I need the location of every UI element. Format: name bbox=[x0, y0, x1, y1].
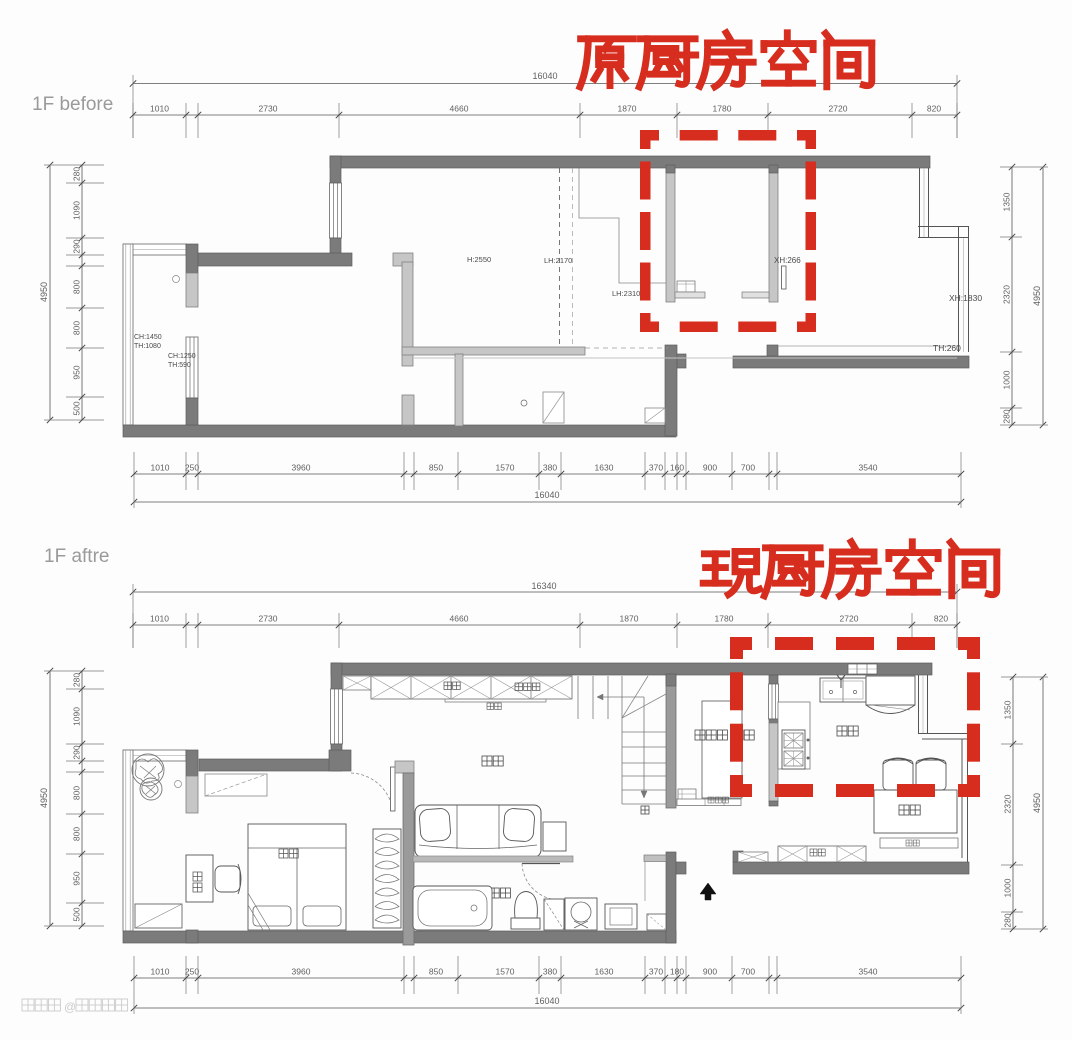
svg-text:820: 820 bbox=[934, 614, 948, 624]
svg-text:TH:260: TH:260 bbox=[933, 343, 961, 353]
svg-text:290: 290 bbox=[72, 745, 82, 759]
svg-text:1000: 1000 bbox=[1002, 370, 1012, 389]
svg-text:1010: 1010 bbox=[151, 967, 170, 977]
svg-text:800: 800 bbox=[72, 321, 82, 335]
svg-text:2720: 2720 bbox=[829, 104, 848, 114]
svg-text:1000: 1000 bbox=[1003, 878, 1013, 897]
svg-text:950: 950 bbox=[72, 365, 82, 379]
svg-text:1570: 1570 bbox=[496, 463, 515, 473]
svg-text:850: 850 bbox=[429, 967, 443, 977]
svg-text:16040: 16040 bbox=[534, 996, 559, 1006]
svg-text:3540: 3540 bbox=[859, 967, 878, 977]
svg-text:700: 700 bbox=[741, 967, 755, 977]
svg-text:1F before: 1F before bbox=[32, 94, 113, 115]
svg-text:800: 800 bbox=[72, 786, 82, 800]
svg-text:700: 700 bbox=[741, 463, 755, 473]
svg-text:290: 290 bbox=[72, 239, 82, 253]
svg-text:500: 500 bbox=[72, 907, 82, 921]
svg-text:820: 820 bbox=[927, 104, 941, 114]
svg-text:1F aftre: 1F aftre bbox=[44, 546, 109, 567]
svg-text:250: 250 bbox=[185, 967, 199, 977]
svg-text:2730: 2730 bbox=[259, 614, 278, 624]
svg-text:@: @ bbox=[64, 1000, 76, 1014]
svg-text:800: 800 bbox=[72, 280, 82, 294]
svg-text:1010: 1010 bbox=[151, 463, 170, 473]
svg-text:4660: 4660 bbox=[450, 614, 469, 624]
svg-text:900: 900 bbox=[703, 463, 717, 473]
svg-text:2720: 2720 bbox=[840, 614, 859, 624]
svg-text:LH:2170: LH:2170 bbox=[544, 256, 572, 265]
svg-text:1630: 1630 bbox=[595, 463, 614, 473]
svg-text:4660: 4660 bbox=[450, 104, 469, 114]
svg-text:16340: 16340 bbox=[531, 581, 556, 591]
svg-text:1010: 1010 bbox=[150, 614, 169, 624]
svg-text:280: 280 bbox=[72, 673, 82, 687]
svg-text:1870: 1870 bbox=[620, 614, 639, 624]
svg-text:3960: 3960 bbox=[292, 463, 311, 473]
svg-text:2320: 2320 bbox=[1002, 285, 1012, 304]
svg-text:900: 900 bbox=[703, 967, 717, 977]
svg-text:4950: 4950 bbox=[1032, 793, 1042, 813]
svg-text:1090: 1090 bbox=[72, 707, 82, 726]
svg-text:950: 950 bbox=[72, 871, 82, 885]
svg-text:16040: 16040 bbox=[534, 490, 559, 500]
svg-text:H:2550: H:2550 bbox=[467, 255, 491, 264]
svg-text:370: 370 bbox=[649, 463, 663, 473]
svg-text:CH:1450: CH:1450 bbox=[134, 334, 162, 341]
svg-text:TH:1080: TH:1080 bbox=[134, 343, 161, 350]
svg-text:2320: 2320 bbox=[1003, 794, 1013, 813]
svg-text:250: 250 bbox=[185, 463, 199, 473]
svg-text:CH:1250: CH:1250 bbox=[168, 353, 196, 360]
svg-text:1870: 1870 bbox=[618, 104, 637, 114]
svg-text:XH:1830: XH:1830 bbox=[949, 293, 982, 303]
svg-text:1570: 1570 bbox=[496, 967, 515, 977]
svg-text:1090: 1090 bbox=[72, 201, 82, 220]
svg-text:16040: 16040 bbox=[532, 71, 557, 81]
svg-text:1780: 1780 bbox=[713, 104, 732, 114]
svg-text:LH:2310: LH:2310 bbox=[612, 289, 640, 298]
svg-text:4950: 4950 bbox=[39, 282, 49, 302]
svg-text:4950: 4950 bbox=[1032, 286, 1042, 306]
svg-text:3960: 3960 bbox=[292, 967, 311, 977]
svg-text:800: 800 bbox=[72, 827, 82, 841]
svg-text:1630: 1630 bbox=[595, 967, 614, 977]
svg-text:1350: 1350 bbox=[1002, 192, 1012, 211]
svg-text:280: 280 bbox=[72, 167, 82, 181]
svg-text:180: 180 bbox=[670, 967, 684, 977]
svg-text:370: 370 bbox=[649, 967, 663, 977]
svg-text:3540: 3540 bbox=[859, 463, 878, 473]
svg-text:4950: 4950 bbox=[39, 788, 49, 808]
svg-text:TH:590: TH:590 bbox=[168, 362, 191, 369]
svg-text:1350: 1350 bbox=[1003, 700, 1013, 719]
svg-text:500: 500 bbox=[72, 401, 82, 415]
svg-text:160: 160 bbox=[670, 463, 684, 473]
svg-text:280: 280 bbox=[1003, 913, 1013, 927]
svg-text:XH:266: XH:266 bbox=[774, 256, 801, 265]
svg-text:1010: 1010 bbox=[150, 104, 169, 114]
svg-text:280: 280 bbox=[1002, 409, 1012, 423]
svg-text:2730: 2730 bbox=[259, 104, 278, 114]
svg-text:850: 850 bbox=[429, 463, 443, 473]
svg-text:380: 380 bbox=[543, 463, 557, 473]
svg-text:1780: 1780 bbox=[715, 614, 734, 624]
svg-text:380: 380 bbox=[543, 967, 557, 977]
